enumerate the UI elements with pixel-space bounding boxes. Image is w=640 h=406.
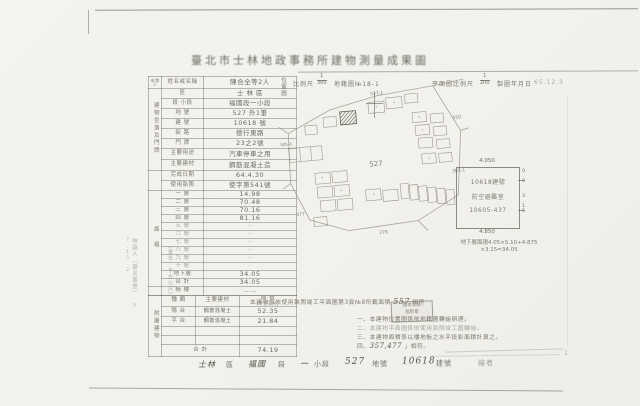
floorplan-dim-bottom: 4.850 [456, 229, 518, 235]
applicant-group-label: 申請人 [149, 77, 162, 89]
floorplan-dim-right-b: 3.15 [521, 194, 526, 212]
scale-denominator: 300 [317, 80, 327, 86]
note-item: 四、357,477 」相符。 [357, 341, 430, 350]
field-label: 主要用途 [162, 149, 204, 160]
footer-building-number: 10618 [402, 356, 436, 366]
floor-area-value: 34.05 [204, 279, 297, 287]
annex-row [149, 336, 297, 345]
floor-area-value: 70.16 [204, 207, 297, 215]
footer-line: 士林 區 福國 段 一 小段 527 地號 10618 建號 繪者 [190, 357, 520, 371]
floorplan-outline: 10618建號 防空避難室 10605-437 [456, 167, 520, 229]
annex-group-label: 附屬建物 [149, 296, 162, 357]
note-number: 四、 [357, 344, 370, 350]
note-suffix: 」相符。 [404, 344, 429, 350]
footer-drafter-label: 繪者 [478, 358, 494, 368]
table-row: 街 路 德行東路 [149, 129, 297, 139]
annex-row: 平 台 鋼筋混凝土 21.84 [149, 317, 297, 327]
plan-scale-denominator: 200 [480, 80, 490, 86]
footer-lot-number: 527 [345, 357, 365, 367]
applicant-signature-note: 申請人（簽名蓋章） 9 7.15.2 [124, 238, 138, 323]
table-row: 主要用途 汽車停車之用 [149, 149, 297, 160]
scale-fraction: 1 300 [317, 74, 327, 86]
annex-total-value: 74.19 [240, 345, 297, 357]
floorplan-dim-top: 4.050 [456, 158, 518, 164]
annex-material [196, 327, 240, 336]
footer-district-label: 區 [226, 360, 234, 370]
annex-row [149, 327, 297, 336]
note-item: 二、本建物平面圖係依使用執照竣工圖轉繪。 [357, 323, 483, 332]
floor-area-value: · [204, 231, 297, 239]
floor-label: 五 層 [162, 223, 204, 231]
annex-material [196, 336, 240, 345]
floor-area-value: 81.16 [204, 215, 297, 223]
footer-rule-1 [445, 348, 563, 352]
field-label: 區 [162, 89, 204, 99]
floor-area-value: · [204, 239, 297, 247]
annex-col-material: 主要建材 [196, 296, 240, 307]
annex-type [162, 336, 196, 345]
area-group-label: 面 積 [149, 191, 162, 287]
plan-scale-fraction: 1 200 [480, 74, 490, 86]
scanned-document: 臺北市士林地政事務所建物測量成果圖 位置圖 比例尺 1 300 地籍圖№18-1… [0, 0, 640, 406]
footer-lot-label: 地號 [372, 359, 388, 369]
annex-type [162, 327, 196, 336]
drawing-date-value: 65.12.3 [534, 79, 564, 86]
parcel-number-bottom-left: 377 [296, 211, 305, 218]
applicant-name-value: 陳合全等2人 [204, 77, 297, 89]
annex-material: 鋼筋混凝土 [196, 307, 240, 317]
floorplan-line1: 10618建號 [457, 177, 519, 186]
completion-date-row: 完成日期 64.4.30 [149, 171, 297, 181]
table-row: 地 號 527 外1筆 [149, 109, 297, 119]
field-label: 建 號 [162, 119, 204, 129]
footer-district-value: 士林 [198, 359, 216, 370]
floorplan-line2: 防空避難室 [457, 192, 519, 201]
footer-section-label: 段 [278, 359, 286, 369]
floor-area-value: · [204, 263, 297, 271]
floor-row: 面 積 一 層 14.98 [149, 191, 297, 199]
table-row: 門 牌 23之2號 [149, 139, 297, 149]
floor-row: 三 層70.16 [149, 207, 297, 215]
parcel-number-right-top: 550 [452, 114, 461, 121]
floor-row: 四 層81.16 [149, 215, 297, 223]
license-row: 使用執照 使字第541號 [149, 181, 297, 191]
document-title: 臺北市士林地政事務所建物測量成果圖 [182, 52, 438, 68]
field-label: 段 小段 [162, 99, 204, 109]
field-label: 街 路 [162, 129, 204, 139]
floor-label: 一 層 [162, 191, 204, 199]
floor-label: 六 層 [162, 231, 204, 239]
applicant-signature-text: 申請人（簽名蓋章） [131, 238, 137, 297]
drawing-date-label: 製圖年月日 [497, 79, 532, 88]
annex-area [240, 336, 297, 345]
field-label: 使用執照 [162, 181, 204, 191]
floorplan-caption-line2: ×3.15=34.05 [436, 247, 562, 254]
annex-area [240, 327, 297, 336]
location-group-label: 建物坐落及門牌 [149, 89, 162, 171]
parcel-number-left: 905-4 [280, 141, 292, 147]
site-location-plan: 527 527-1 550 383-1 905-4 377 278 [275, 78, 477, 244]
applicant-name-label: 姓名或名稱 [162, 77, 204, 89]
table-row: 段 小段 福國段一小段 [149, 99, 297, 109]
parcel-number-bottom: 278 [379, 229, 388, 236]
field-label: 主要建材 [162, 160, 204, 171]
floorplan-caption-line1: 地下層面積4.05×5.10+4.875 [436, 240, 562, 247]
header-rule [298, 70, 638, 72]
annex-area: 21.84 [240, 317, 297, 327]
note-item: 一、本建物位置圖係依地籍圖轉繪辦理。 [357, 314, 470, 323]
field-label: 完成日期 [162, 171, 204, 181]
note-handwritten: 357,477 [370, 342, 402, 350]
floor-row: 二 層70.48 [149, 199, 297, 207]
scan-edge-bottom [89, 388, 563, 392]
annex-total-label: 合 計 [162, 345, 240, 357]
page-number: 1 [564, 350, 568, 357]
annex-type: 平 台 [162, 317, 196, 327]
table-row: 建 號 10618 號 [149, 119, 297, 129]
floor-label: 二 層 [162, 199, 204, 207]
note-item: 三、本建物面積係以樓地板之水平投影面積計算之。 [357, 332, 502, 341]
annex-material: 鋼筋混凝土 [196, 317, 240, 327]
parcel-number-top: 527-1 [370, 90, 384, 97]
floorplan-dim-right-a: 0.9 [521, 169, 526, 183]
parcel-number-center: 527 [369, 159, 383, 168]
footer-subsection-value: 一 [300, 358, 309, 369]
floor-label: 三 層 [162, 207, 204, 215]
scan-edge-left-tick [88, 10, 89, 34]
annex-area: 52.35 [240, 307, 297, 317]
applicant-row: 申請人 姓名或名稱 陳合全等2人 [149, 77, 297, 89]
unit-note: （單位:平方公尺） [167, 243, 174, 305]
subject-building-hatched [340, 111, 357, 125]
floorplan-line3: 10605-437 [457, 207, 519, 214]
building-marks [315, 99, 432, 200]
field-label: 門 牌 [162, 139, 204, 149]
area-statement-text: 本建物係依使用執照竣工平面圖第3頁№8所載面積 [250, 300, 391, 306]
spacer-cell [149, 171, 162, 191]
footer-subsection-label: 小段 [314, 359, 330, 369]
survey-form-table: 申請人 姓名或名稱 陳合全等2人 建物坐落及門牌 區 士 林 區 段 小段 福國… [148, 76, 296, 357]
floor-area-value: 70.48 [204, 199, 297, 207]
floor-label: 四 層 [162, 215, 204, 223]
floor-area-value: · [204, 247, 297, 255]
table-row: 主要建材 鋼筋混凝土造 [149, 160, 297, 171]
annex-total-row: 合 計 74.19 [149, 345, 297, 357]
floor-row: 六 層· [149, 231, 297, 239]
annex-type: 陽 台 [162, 307, 196, 317]
floor-area-value: · [204, 255, 297, 263]
floor-area-value: 34.05 [204, 271, 297, 279]
annex-row: 陽 台 鋼筋混凝土 52.35 [149, 307, 297, 317]
scan-edge-top [95, 8, 638, 10]
footer-building-label: 建號 [436, 358, 452, 368]
floor-area-value: · [204, 223, 297, 231]
field-label: 地 號 [162, 109, 204, 119]
footer-section-value: 福國 [248, 359, 266, 370]
floorplan-caption: 地下層面積4.05×5.10+4.875 ×3.15=34.05 [436, 240, 562, 255]
scan-edge-right [567, 95, 568, 345]
floor-row: 五 層· [149, 223, 297, 231]
